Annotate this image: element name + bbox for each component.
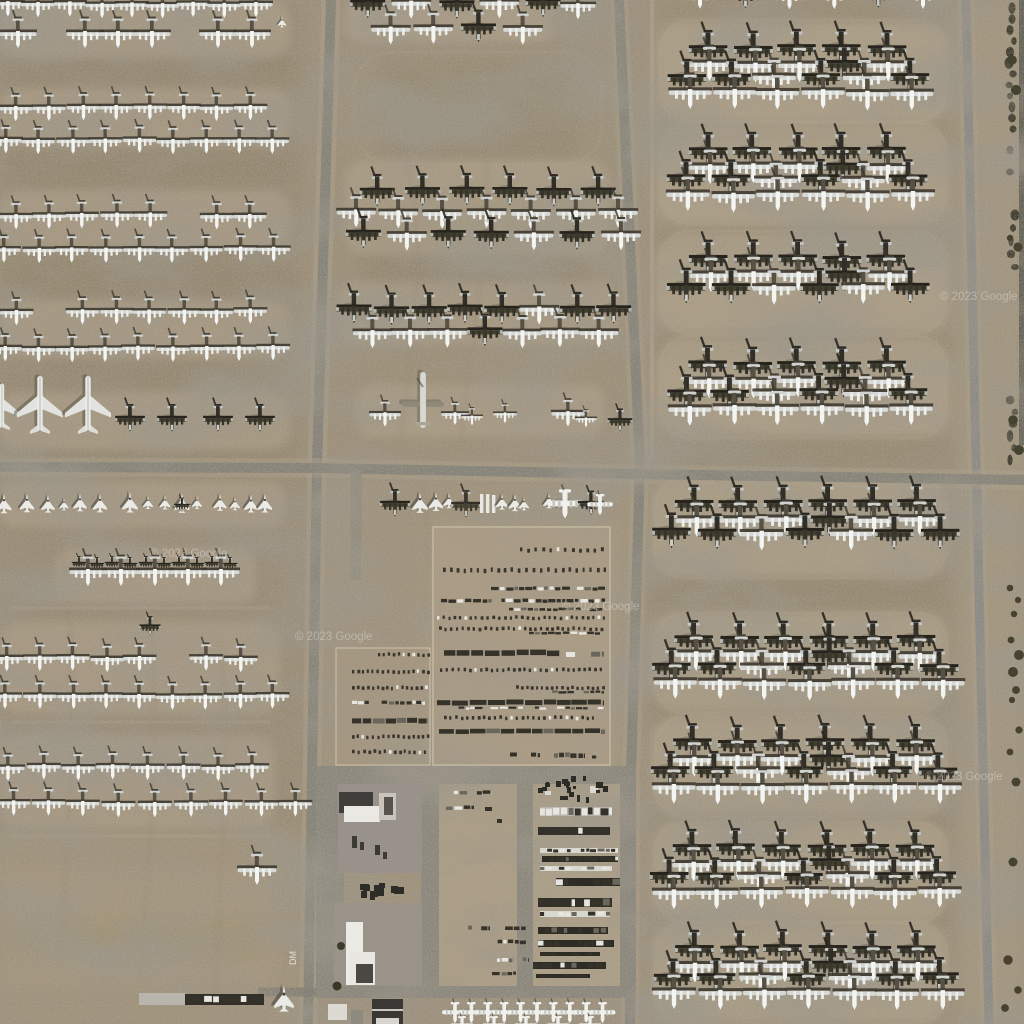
svg-text:© 2023 Google: © 2023 Google <box>295 631 373 643</box>
svg-text:© 2023 Google: © 2023 Google <box>150 548 228 560</box>
svg-text:© 2023 Google: © 2023 Google <box>925 771 1003 783</box>
svg-text:© 2023 Google: © 2023 Google <box>562 601 640 613</box>
svg-text:© 2023 Google: © 2023 Google <box>940 291 1018 303</box>
svg-text:DM: DM <box>288 951 298 965</box>
